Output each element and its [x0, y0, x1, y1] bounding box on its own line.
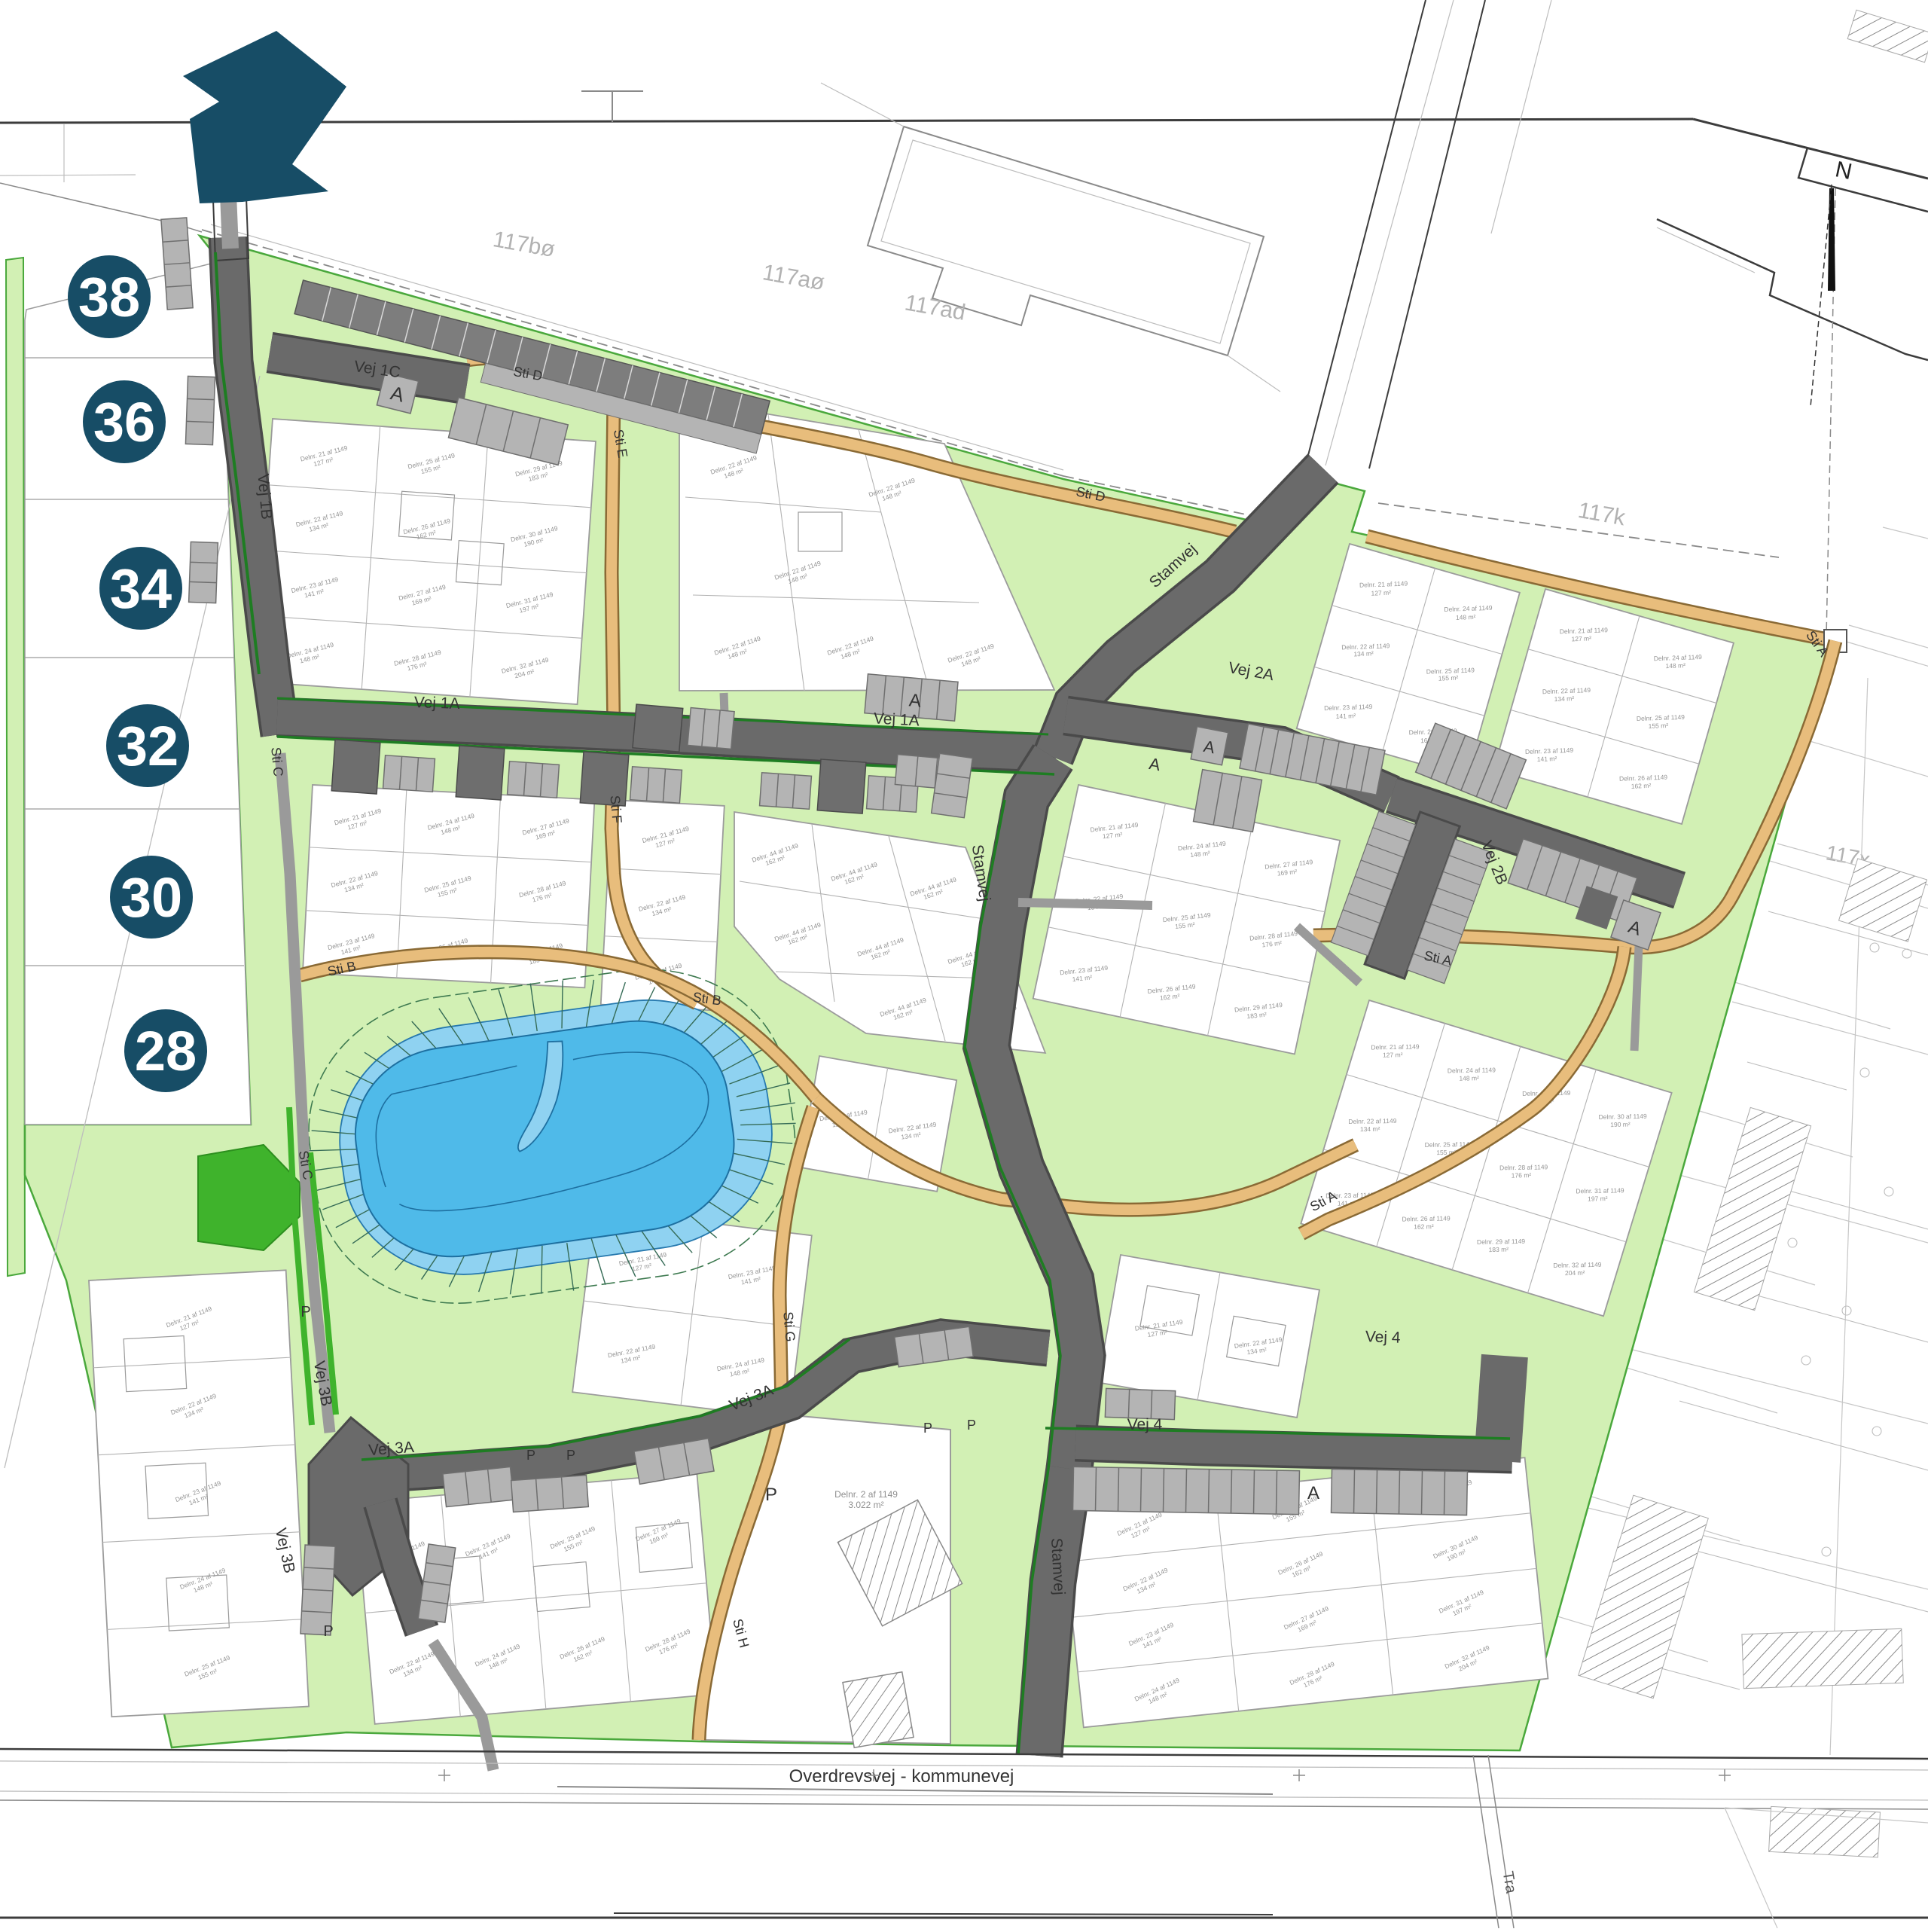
svg-text:Vej 4: Vej 4: [1365, 1328, 1401, 1347]
svg-text:38: 38: [78, 266, 140, 328]
svg-text:134 m²: 134 m²: [1360, 1125, 1380, 1133]
svg-text:3.022 m²: 3.022 m²: [848, 1500, 883, 1510]
svg-text:127 m²: 127 m²: [1383, 1051, 1403, 1058]
svg-text:155 m²: 155 m²: [1648, 722, 1668, 730]
svg-text:Stamvej: Stamvej: [1048, 1537, 1068, 1595]
svg-text:32: 32: [117, 715, 178, 777]
svg-text:Sti F: Sti F: [607, 795, 624, 824]
svg-text:190 m²: 190 m²: [1610, 1121, 1631, 1128]
svg-text:148 m²: 148 m²: [1459, 1074, 1479, 1082]
svg-text:Delnr. 29 af 1149: Delnr. 29 af 1149: [1477, 1238, 1526, 1246]
svg-text:197 m²: 197 m²: [1588, 1195, 1608, 1202]
svg-text:Delnr. 24 af 1149: Delnr. 24 af 1149: [1448, 1066, 1496, 1074]
svg-text:162 m²: 162 m²: [1414, 1222, 1434, 1230]
svg-text:P: P: [566, 1448, 575, 1463]
svg-text:Delnr. 30 af 1149: Delnr. 30 af 1149: [1599, 1113, 1648, 1121]
svg-text:28: 28: [135, 1020, 197, 1082]
svg-text:Sti G: Sti G: [780, 1311, 798, 1343]
svg-text:Vej 4: Vej 4: [1127, 1416, 1163, 1433]
svg-text:A: A: [908, 690, 922, 711]
svg-text:134 m²: 134 m²: [1554, 694, 1574, 703]
svg-text:P: P: [967, 1418, 976, 1433]
svg-text:34: 34: [110, 557, 172, 620]
svg-text:Delnr. 22 af 1149: Delnr. 22 af 1149: [1348, 1117, 1397, 1125]
svg-text:127 m²: 127 m²: [1371, 589, 1391, 597]
svg-text:P: P: [300, 1304, 310, 1320]
svg-text:Vej 3A: Vej 3A: [368, 1439, 414, 1459]
svg-text:141 m²: 141 m²: [1537, 755, 1557, 763]
svg-text:176 m²: 176 m²: [1512, 1171, 1532, 1179]
svg-text:36: 36: [93, 391, 155, 453]
svg-text:148 m²: 148 m²: [1456, 613, 1476, 621]
svg-text:Delnr. 31 af 1149: Delnr. 31 af 1149: [1576, 1186, 1624, 1195]
svg-text:Delnr. 2 af 1149: Delnr. 2 af 1149: [834, 1489, 898, 1500]
svg-text:A: A: [1307, 1483, 1319, 1503]
svg-text:30: 30: [120, 866, 182, 929]
svg-text:Delnr. 26 af 1149: Delnr. 26 af 1149: [1402, 1214, 1451, 1222]
svg-text:Sti C: Sti C: [268, 746, 285, 777]
svg-text:Vej 1A: Vej 1A: [873, 710, 920, 729]
svg-text:Vej 1A: Vej 1A: [413, 694, 459, 713]
svg-text:141 m²: 141 m²: [1335, 712, 1356, 720]
svg-text:P: P: [323, 1623, 333, 1640]
svg-text:134 m²: 134 m²: [1353, 649, 1374, 658]
svg-text:Overdrevsvej - kommunevej: Overdrevsvej - kommunevej: [789, 1766, 1014, 1787]
svg-text:P: P: [526, 1448, 535, 1463]
svg-text:Delnr. 21 af 1149: Delnr. 21 af 1149: [1371, 1042, 1420, 1051]
svg-text:183 m²: 183 m²: [1489, 1246, 1509, 1253]
svg-text:127 m²: 127 m²: [1571, 634, 1591, 642]
svg-text:P: P: [923, 1421, 932, 1436]
svg-text:204 m²: 204 m²: [1565, 1269, 1585, 1277]
svg-text:148 m²: 148 m²: [1665, 661, 1685, 670]
svg-text:Delnr. 28 af 1149: Delnr. 28 af 1149: [1499, 1163, 1548, 1171]
svg-text:162 m²: 162 m²: [1631, 782, 1652, 790]
svg-text:155 m²: 155 m²: [1438, 674, 1459, 682]
svg-text:Delnr. 32 af 1149: Delnr. 32 af 1149: [1553, 1261, 1602, 1269]
